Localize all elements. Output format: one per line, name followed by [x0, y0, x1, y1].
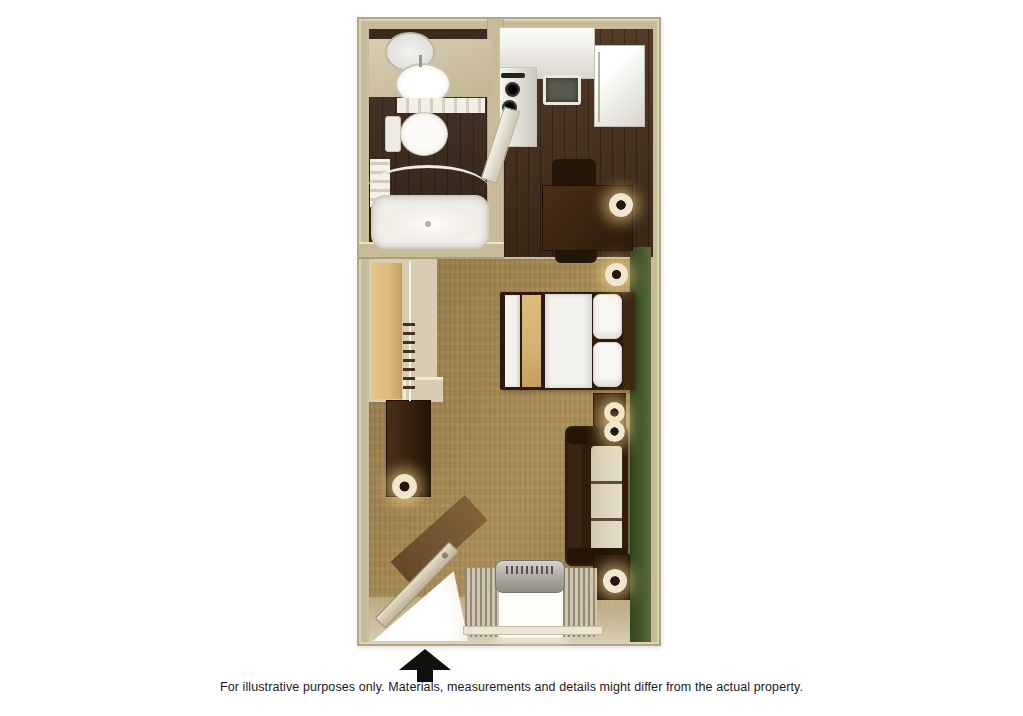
bathtub-drain — [425, 221, 431, 227]
nightstand-lamp — [604, 421, 625, 442]
stove-vent — [501, 73, 525, 78]
refrigerator — [594, 45, 645, 127]
closet-hangers — [403, 319, 415, 389]
bathtub — [371, 195, 489, 249]
sofa — [565, 426, 628, 566]
headboard — [623, 292, 635, 390]
nightstand-lamp — [604, 402, 625, 423]
door-knob — [441, 551, 449, 559]
ac-vents — [506, 566, 556, 574]
studio-floorplan — [357, 17, 661, 646]
closet-panel — [372, 263, 402, 399]
toilet-tank — [385, 116, 401, 152]
bed-duvet — [545, 294, 592, 388]
bed-foot-linen — [505, 295, 520, 387]
sink-faucet — [419, 55, 422, 67]
dresser-lamp — [392, 474, 417, 499]
arrow-head — [399, 649, 451, 670]
sofa-back — [568, 436, 581, 556]
toilet — [400, 112, 448, 156]
floorplan-page: For illustrative purposes only. Material… — [0, 0, 1023, 716]
window-sill — [463, 626, 603, 635]
towel-rack — [397, 98, 485, 113]
bedside-lamp — [605, 263, 628, 286]
disclaimer-caption: For illustrative purposes only. Material… — [0, 680, 1023, 694]
stove-burner — [505, 82, 520, 97]
pillow — [593, 294, 622, 339]
sofa-cushions — [591, 446, 622, 556]
pillow — [593, 342, 622, 387]
cushion-seam — [591, 481, 622, 484]
refrigerator-handle — [598, 52, 600, 122]
cushion-seam — [591, 518, 622, 521]
bed — [500, 292, 635, 390]
side-table-lamp — [603, 569, 627, 593]
bed-runner — [522, 295, 541, 387]
kitchen-sink — [543, 75, 581, 105]
ac-unit — [495, 560, 565, 593]
desk-lamp — [609, 193, 633, 217]
bathtub-basin — [383, 205, 479, 243]
